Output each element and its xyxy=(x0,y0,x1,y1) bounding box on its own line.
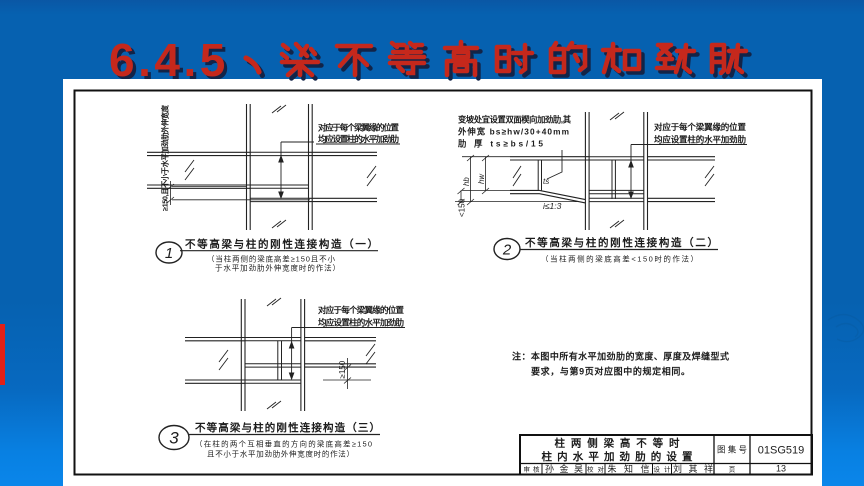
svg-text:柱两侧梁高不等时: 柱两侧梁高不等时 xyxy=(555,437,681,450)
svg-text:1: 1 xyxy=(165,245,173,262)
svg-text:且不小于水平加劲肋外伸宽度时的作法）: 且不小于水平加劲肋外伸宽度时的作法） xyxy=(207,449,354,459)
svg-text:≥150,且不小于水平加劲肋外伸宽度: ≥150,且不小于水平加劲肋外伸宽度 xyxy=(161,104,170,211)
svg-text:hb: hb xyxy=(462,177,471,186)
svg-text:≥150: ≥150 xyxy=(338,360,347,378)
svg-text:<150: <150 xyxy=(458,198,467,217)
svg-text:均应设置柱的水平加劲肋: 均应设置柱的水平加劲肋 xyxy=(318,134,399,144)
svg-text:对应于每个梁翼缘的位置: 对应于每个梁翼缘的位置 xyxy=(318,305,404,315)
svg-text:对应于每个梁翼缘的位置: 对应于每个梁翼缘的位置 xyxy=(318,123,399,133)
svg-text:刘其祥: 刘其祥 xyxy=(673,463,713,474)
svg-text:于水平加劲肋外伸宽度时的作法）: 于水平加劲肋外伸宽度时的作法） xyxy=(215,263,340,273)
svg-text:孙金昊: 孙金昊 xyxy=(545,463,583,474)
svg-text:变坡处宜设置双面楔向加劲肋,其: 变坡处宜设置双面楔向加劲肋,其 xyxy=(458,115,572,125)
svg-text:（在柱的两个互相垂直的方向的梁底高差≥150: （在柱的两个互相垂直的方向的梁底高差≥150 xyxy=(195,439,372,449)
svg-text:i≤1:3: i≤1:3 xyxy=(543,201,562,211)
svg-text:肋 厚 ts≥bs/15: 肋 厚 ts≥bs/15 xyxy=(458,139,543,149)
svg-text:hw: hw xyxy=(477,173,486,184)
svg-text:均应设置柱的水平加劲肋: 均应设置柱的水平加劲肋 xyxy=(318,318,404,328)
svg-text:柱内水平加劲肋的设置: 柱内水平加劲肋的设置 xyxy=(542,450,694,463)
svg-text:对应于每个梁翼缘的位置: 对应于每个梁翼缘的位置 xyxy=(654,122,746,132)
svg-text:图集号: 图集号 xyxy=(717,445,747,455)
svg-text:不等高梁与柱的刚性连接构造（二）: 不等高梁与柱的刚性连接构造（二） xyxy=(525,236,718,249)
svg-text:13: 13 xyxy=(776,464,786,474)
svg-text:3: 3 xyxy=(169,429,179,448)
svg-text:不等高梁与柱的刚性连接构造（三）: 不等高梁与柱的刚性连接构造（三） xyxy=(195,421,380,434)
svg-text:2: 2 xyxy=(502,242,512,259)
svg-text:页: 页 xyxy=(729,466,736,474)
svg-text:朱知信: 朱知信 xyxy=(608,463,650,474)
svg-text:要求，与第9页对应图中的规定相同。: 要求，与第9页对应图中的规定相同。 xyxy=(531,366,690,377)
svg-text:均应设置柱的水平加劲肋: 均应设置柱的水平加劲肋 xyxy=(654,135,746,145)
svg-text:01SG519: 01SG519 xyxy=(758,445,804,457)
svg-text:（当柱两侧的梁底高差≥150且不小: （当柱两侧的梁底高差≥150且不小 xyxy=(207,254,336,264)
svg-text:外伸宽 bs≥hw/30+40mm: 外伸宽 bs≥hw/30+40mm xyxy=(458,127,569,137)
svg-text:设计: 设计 xyxy=(654,465,672,474)
svg-text:不等高梁与柱的刚性连接构造（一）: 不等高梁与柱的刚性连接构造（一） xyxy=(185,238,378,251)
svg-text:审核: 审核 xyxy=(524,465,541,474)
svg-text:校对: 校对 xyxy=(587,465,605,474)
svg-text:（当柱两侧的梁底高差<150时的作法）: （当柱两侧的梁底高差<150时的作法） xyxy=(541,254,698,264)
svg-text:注：本图中所有水平加劲肋的宽度、厚度及焊缝型式: 注：本图中所有水平加劲肋的宽度、厚度及焊缝型式 xyxy=(512,351,729,362)
svg-text:ts: ts xyxy=(543,177,549,186)
